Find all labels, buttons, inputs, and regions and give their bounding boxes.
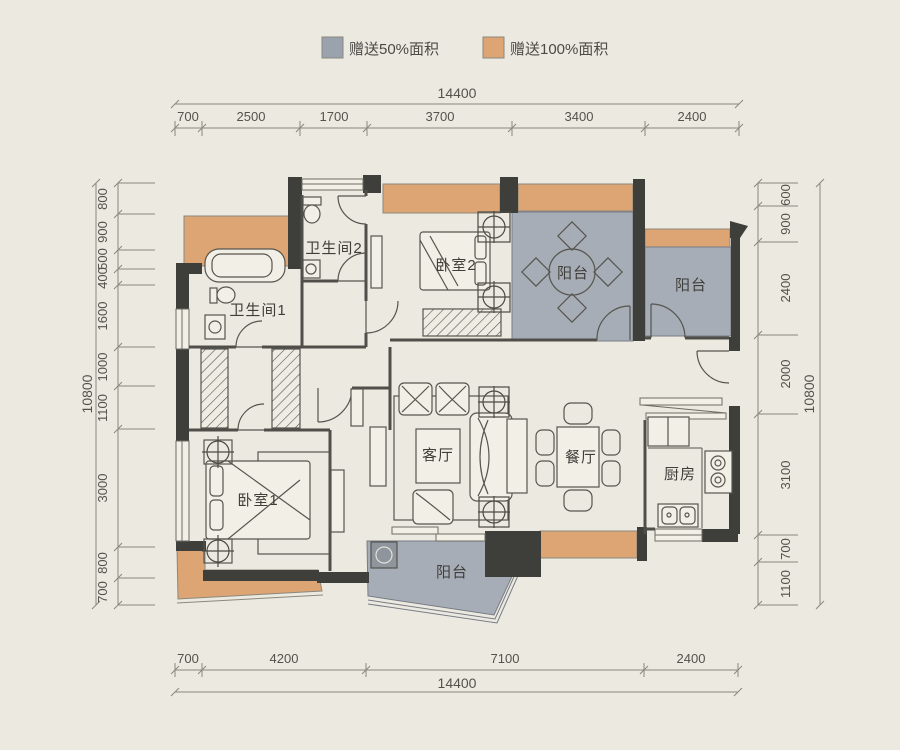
- sofa: [470, 413, 512, 501]
- dim-left-seg: 1000: [95, 353, 110, 382]
- tv-cabinet: [370, 427, 386, 486]
- sink: [205, 315, 225, 339]
- wardrobe-hall: [272, 349, 300, 428]
- dim-right-seg: 700: [778, 538, 793, 560]
- toilet: [217, 287, 235, 303]
- dim-top-seg: 2500: [237, 109, 266, 124]
- dimension-left-labels: 10800 800 900 500 400 1600 1000 1100 300…: [79, 188, 110, 603]
- legend-label-100: 赠送100%面积: [510, 41, 608, 58]
- sliding-door-kitchen: [640, 398, 722, 405]
- wardrobe-bedroom2: [423, 309, 501, 336]
- room-label-balcony-top: 阳台: [557, 265, 589, 282]
- room-label-kitchen: 厨房: [664, 466, 696, 483]
- dining-chair: [602, 461, 620, 486]
- room-label-bathroom1: 卫生间1: [229, 302, 286, 319]
- dim-top-total: 14400: [438, 85, 477, 101]
- dim-top-seg: 1700: [320, 109, 349, 124]
- dim-right-seg: 1100: [778, 570, 793, 598]
- dim-bottom-seg: 2400: [677, 651, 706, 666]
- toilet: [304, 205, 320, 223]
- dim-top-seg: 700: [177, 109, 199, 124]
- room-label-bedroom2: 卧室2: [435, 257, 476, 274]
- dining-chair: [564, 403, 592, 424]
- door-bathroom1: [236, 321, 262, 347]
- dim-bottom-seg: 7100: [491, 651, 520, 666]
- dim-left-seg: 900: [95, 221, 110, 243]
- legend-swatch-100: [483, 37, 504, 58]
- dim-top-seg: 3400: [565, 109, 594, 124]
- dim-left-seg: 1100: [95, 394, 110, 422]
- door-bedroom2: [366, 301, 398, 333]
- sliding-door-balcony: [436, 534, 485, 541]
- door-hallway: [318, 388, 352, 422]
- door-bathroom2-b: [338, 253, 366, 281]
- door-entry-right: [697, 351, 729, 383]
- gift100-balcony-top-window: [518, 184, 633, 211]
- pillow: [475, 236, 486, 259]
- desk: [331, 470, 344, 532]
- room-label-living: 客厅: [422, 447, 454, 464]
- toilet-tank: [210, 288, 217, 303]
- dim-left-seg: 400: [95, 267, 110, 289]
- dim-left-seg: 3000: [95, 474, 110, 503]
- dimension-right-labels: 600 900 2400 2000 3100 700 1100 10800: [778, 184, 817, 598]
- floor-plan-canvas: 赠送50%面积 赠送100%面积 14400 700 2500 1700 370…: [0, 0, 900, 750]
- pillow: [210, 466, 223, 496]
- dim-top-seg: 2400: [678, 109, 707, 124]
- dim-left-seg: 700: [95, 581, 110, 603]
- door-bathroom2-a: [338, 196, 366, 224]
- dim-left-seg: 800: [95, 552, 110, 574]
- dim-right-seg: 2400: [778, 274, 793, 303]
- dim-right-seg: 3100: [778, 461, 793, 490]
- sliding-door-balcony: [392, 527, 438, 534]
- dining-chair: [564, 490, 592, 511]
- dim-right-seg: 900: [778, 213, 793, 235]
- dim-left-total: 10800: [79, 374, 95, 413]
- gift100-balcony-right-window: [645, 229, 730, 247]
- legend-swatch-50: [322, 37, 343, 58]
- dining-chair: [536, 430, 554, 455]
- gift100-dining-window: [540, 531, 637, 558]
- dining-chair: [536, 461, 554, 486]
- room-label-balcony-bottom: 阳台: [436, 564, 468, 581]
- legend: 赠送50%面积 赠送100%面积: [322, 37, 608, 58]
- dim-left-seg: 1600: [95, 302, 110, 331]
- tv-cabinet: [351, 389, 363, 426]
- wardrobe-hall: [201, 349, 228, 428]
- washing-machine: [371, 542, 397, 568]
- dim-bottom-seg: 700: [177, 651, 199, 666]
- side-table: [507, 419, 527, 493]
- pillow: [210, 500, 223, 530]
- dim-left-seg: 500: [95, 248, 110, 270]
- door-bedroom1: [238, 404, 264, 430]
- dim-bottom-seg: 4200: [270, 651, 299, 666]
- room-label-bedroom1: 卧室1: [237, 492, 278, 509]
- room-label-bathroom2: 卫生间2: [305, 240, 362, 257]
- cabinet: [371, 236, 382, 288]
- dim-left-seg: 800: [95, 188, 110, 210]
- room-label-balcony-right: 阳台: [675, 277, 707, 294]
- gift100-bedroom2-window: [383, 184, 500, 213]
- toilet-tank: [303, 197, 321, 205]
- legend-label-50: 赠送50%面积: [349, 41, 439, 58]
- dining-chair: [602, 430, 620, 455]
- dim-top-seg: 3700: [426, 109, 455, 124]
- dim-right-total: 10800: [801, 374, 817, 413]
- dim-right-seg: 2000: [778, 360, 793, 389]
- dim-bottom-total: 14400: [438, 675, 477, 691]
- dim-right-seg: 600: [778, 184, 793, 206]
- dimension-bottom-labels: 700 4200 7100 2400 14400: [177, 651, 705, 691]
- room-label-dining: 餐厅: [565, 449, 597, 466]
